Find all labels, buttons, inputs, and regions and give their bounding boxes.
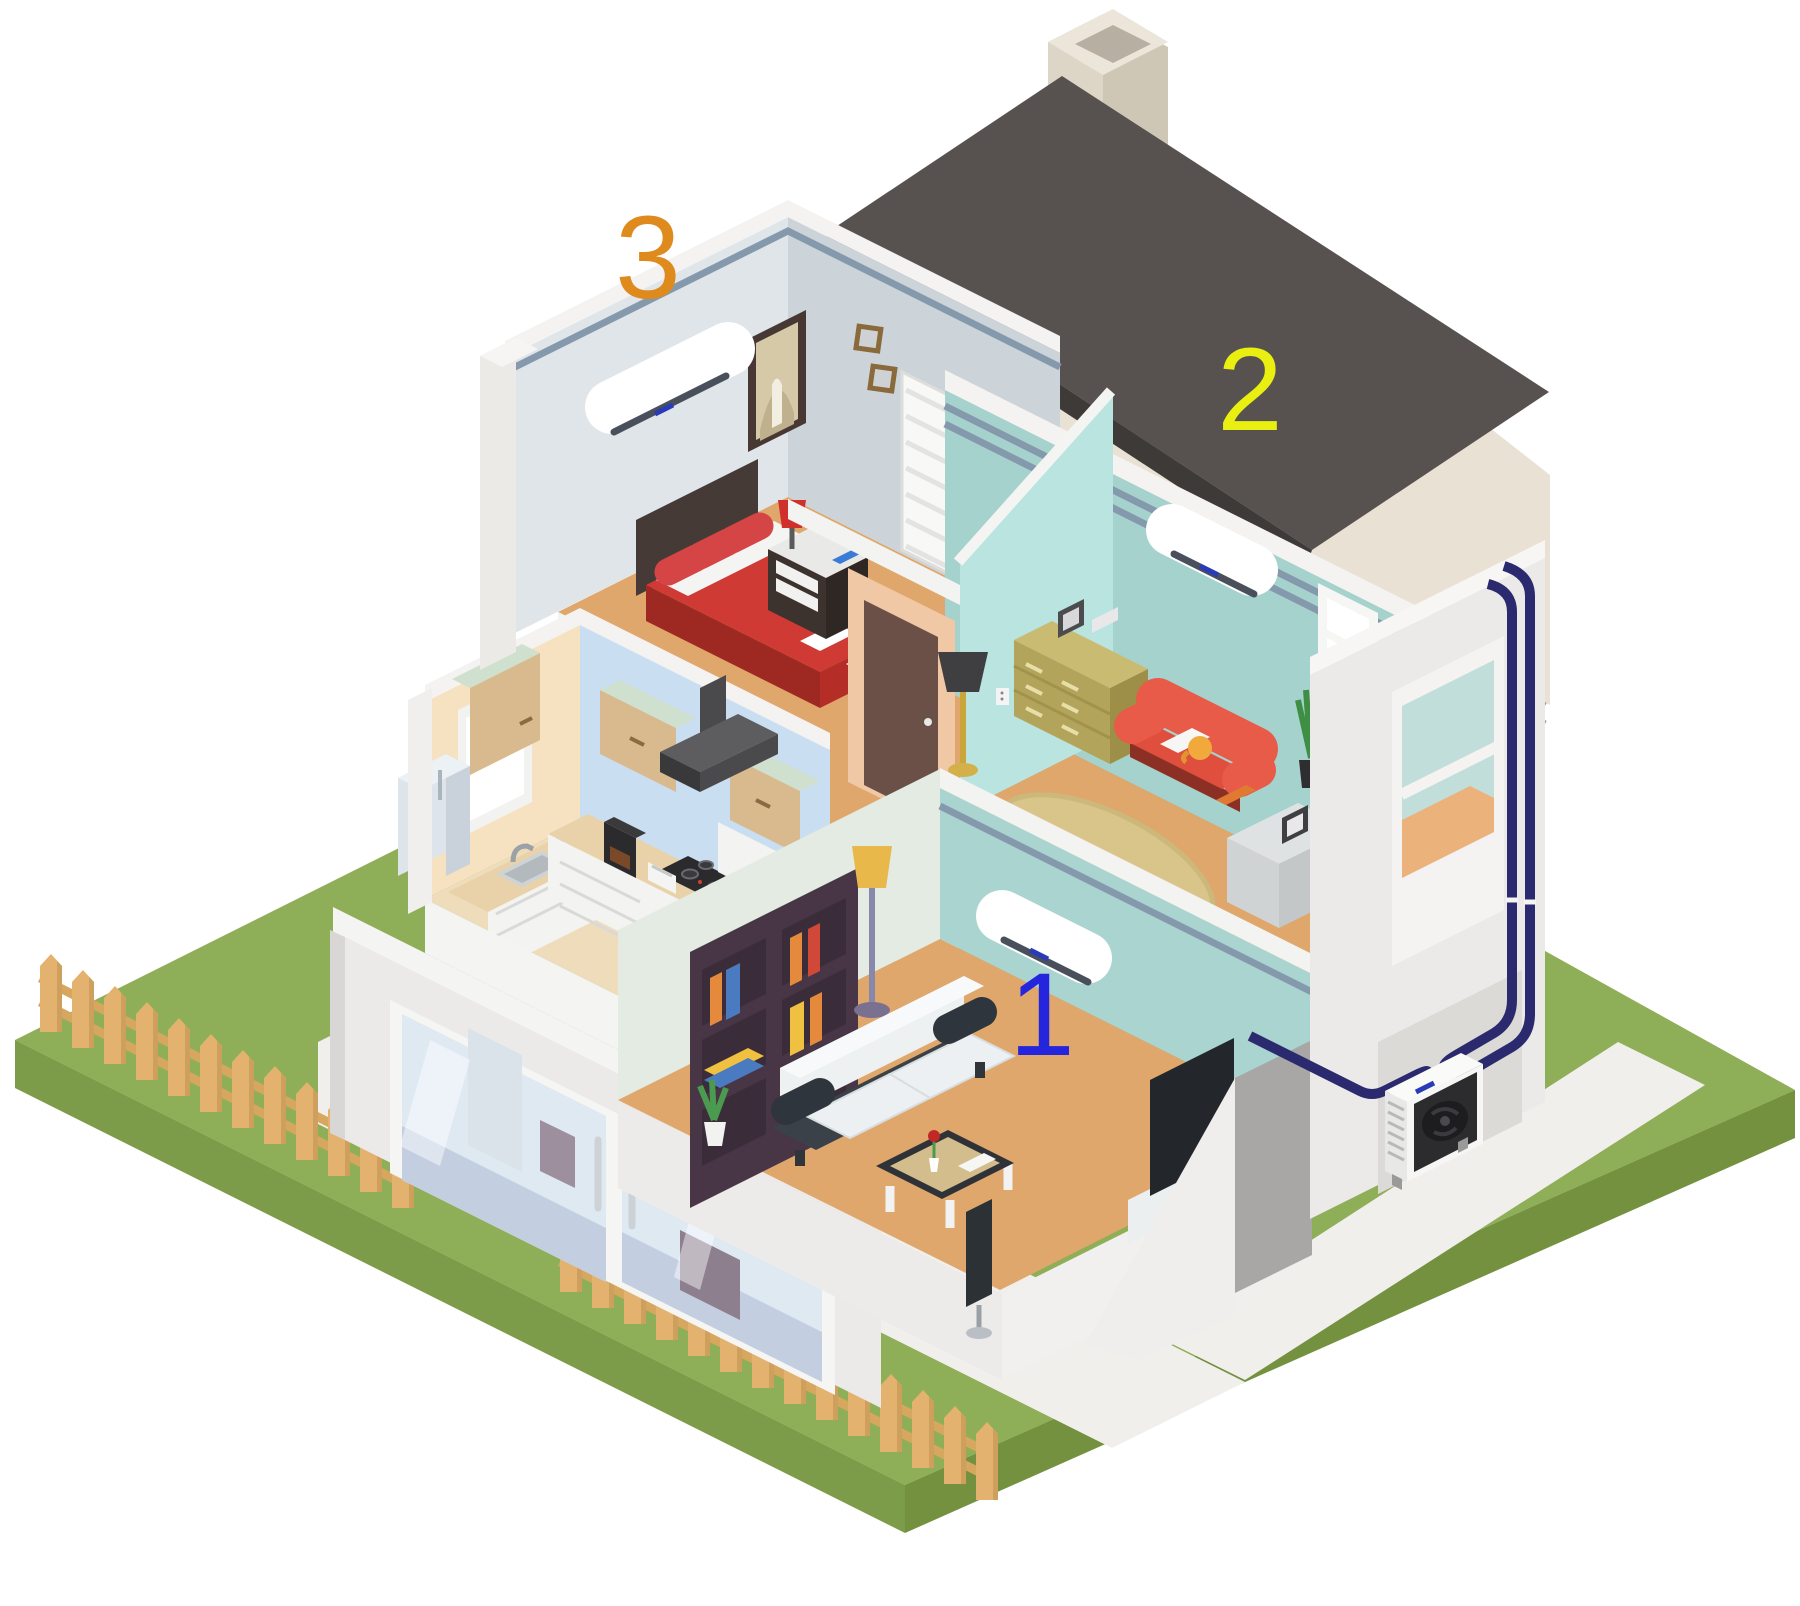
zone-label-2: 2 xyxy=(1217,324,1283,456)
book-red xyxy=(808,923,820,977)
corner-nook-wall xyxy=(1235,1040,1312,1293)
arm-cushion xyxy=(786,1093,820,1110)
portrait-figure xyxy=(772,379,782,429)
flower xyxy=(928,1130,940,1142)
ac-body xyxy=(1172,530,1252,570)
book-orange xyxy=(790,932,802,986)
isometric-house-scene: 3 2 1 xyxy=(0,0,1800,1606)
lamp-shade xyxy=(852,846,892,888)
lamp-base xyxy=(854,1002,890,1018)
sleeping-cat xyxy=(1188,736,1212,760)
fan-hub xyxy=(1440,1116,1450,1126)
book-orange xyxy=(710,972,722,1026)
bedroom-cut-wall xyxy=(480,338,516,670)
right-wall-window xyxy=(1392,636,1504,966)
book-orange xyxy=(810,992,822,1046)
zone-label-3: 3 xyxy=(615,192,681,324)
illustration-canvas: 3 2 1 xyxy=(0,0,1800,1606)
sofa-arm xyxy=(1132,717,1150,726)
zone-label-1: 1 xyxy=(1009,949,1075,1081)
book-yellow xyxy=(790,1001,804,1056)
sofa-arm xyxy=(1240,770,1258,779)
pillow xyxy=(732,526,760,540)
arm-cushion xyxy=(948,1012,982,1029)
kitchen-cut-wall xyxy=(408,688,432,914)
power-outlet xyxy=(996,688,1009,705)
book-blue xyxy=(726,963,740,1020)
front-wall-return xyxy=(330,930,345,1140)
door-handle xyxy=(924,718,932,726)
